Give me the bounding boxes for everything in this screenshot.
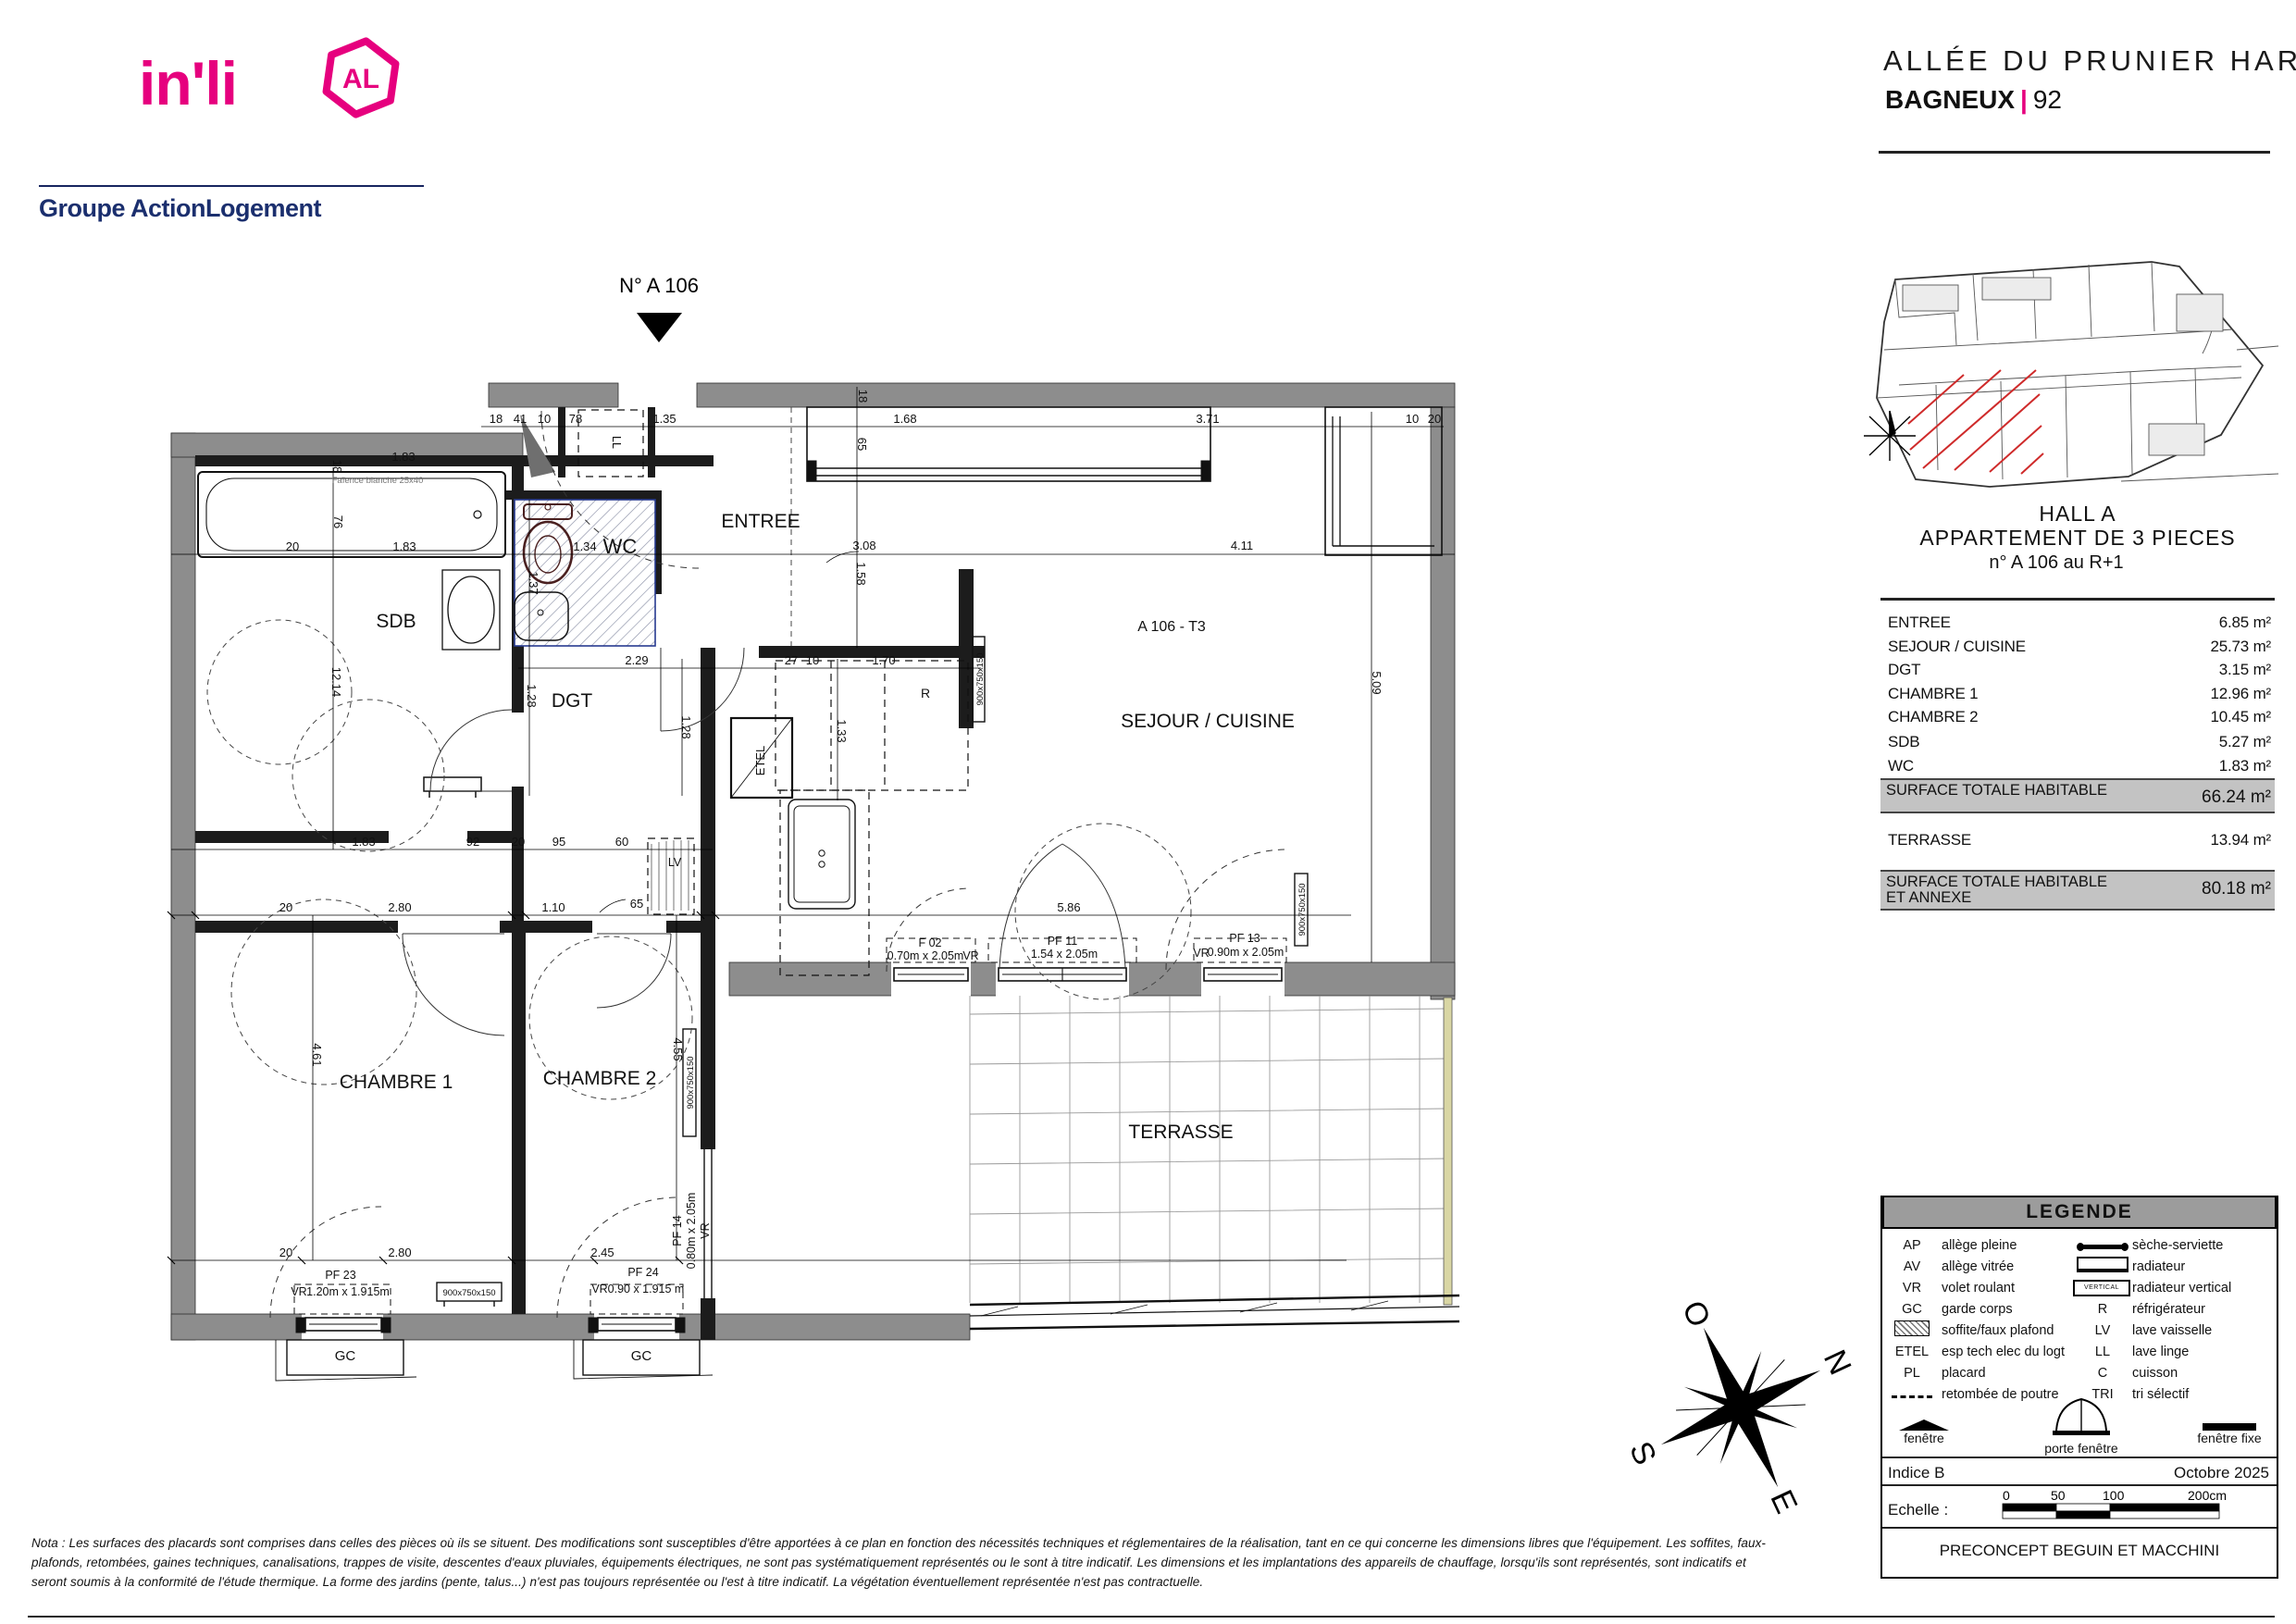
dim-label: 2.29: [625, 653, 648, 667]
room-labels: ENTREE WC SDB DGT A 106 - T3 SEJOUR / CU…: [340, 511, 1295, 1143]
dim-label: 60: [615, 835, 628, 849]
dim-label: 95: [552, 835, 565, 849]
apartment-title: APPARTEMENT DE 3 PIECES: [1880, 526, 2275, 551]
area-value: 5.27 m²: [2219, 733, 2271, 751]
compass-north-label: N: [1817, 1345, 1856, 1380]
dim-label: 1.83: [392, 539, 416, 553]
dim-label: 20: [1428, 412, 1441, 426]
city-name: BAGNEUX: [1885, 85, 2015, 114]
window-id: F 02: [918, 936, 941, 949]
shutter-label: VR: [699, 1222, 712, 1238]
legend-label: radiateur vertical: [2132, 1281, 2231, 1295]
window-id: PF 14: [671, 1215, 684, 1246]
lv-hatch: [652, 840, 689, 911]
room-label-wc: WC: [603, 535, 638, 558]
area-value: 1.83 m²: [2219, 757, 2271, 775]
room-label-dgt: DGT: [552, 690, 593, 712]
dim-label: 65: [855, 438, 869, 451]
thumbnail-compass-icon: [1864, 411, 1916, 461]
radiator-size-label: 900x750x150: [442, 1288, 495, 1298]
dim-label: 5.86: [1057, 900, 1080, 914]
scale-tick: 0: [2003, 1488, 2010, 1503]
unit-marker-label: N° A 106: [619, 274, 699, 297]
dishwasher-label: LV: [668, 856, 682, 869]
scale-label: Echelle :: [1888, 1501, 1948, 1519]
legend-label: garde corps: [1942, 1302, 2013, 1317]
dim-label: 1.10: [541, 900, 565, 914]
dim-label: 1.83: [352, 835, 375, 849]
door-swings: [270, 411, 1286, 1318]
area-label: SDB: [1888, 733, 1919, 751]
area-row: SEJOUR / CUISINE25.73 m²: [1888, 638, 2271, 656]
porte-fenetre-icon: [2053, 1397, 2110, 1436]
towel-radiator: [424, 777, 481, 798]
wall-openings: [302, 961, 1285, 1341]
legend-abbr: PL: [1882, 1366, 1942, 1381]
legend-divider: [1882, 1484, 2277, 1486]
faience-note: Faïence blanche 25x40: [332, 476, 424, 486]
scale-tick: 100: [2103, 1488, 2125, 1503]
area-value: 6.85 m²: [2219, 614, 2271, 632]
area-row: SDB5.27 m²: [1888, 733, 2271, 751]
dim-label: 1.70: [872, 653, 895, 667]
legend-label: réfrigérateur: [2132, 1302, 2205, 1317]
kitchen-sink: [788, 800, 855, 909]
compass-south-label: S: [1625, 1436, 1663, 1470]
legend-label: sèche-serviette: [2132, 1238, 2223, 1253]
dim-label: 1.37: [527, 571, 540, 594]
department-number: 92: [2033, 85, 2062, 114]
area-label: CHAMBRE 2: [1888, 708, 1978, 726]
window-size: 0.90 x 1.915 m: [608, 1283, 685, 1295]
dimension-lines: [168, 387, 1455, 1264]
date-label: Octobre 2025: [2174, 1464, 2269, 1482]
dim-label: 18: [490, 412, 503, 426]
info-divider: [1880, 598, 2275, 601]
compass-west-label: O: [1675, 1295, 1718, 1333]
architect-name: PRECONCEPT BEGUIN ET MACCHINI: [1882, 1542, 2277, 1560]
window-symbol-fenetre-fixe: fenêtre fixe: [2188, 1423, 2271, 1445]
symbol-label: fenêtre fixe: [2188, 1431, 2271, 1445]
dim-label: 10: [538, 412, 551, 426]
legend-label: allège pleine: [1942, 1238, 2017, 1253]
radiator-size-label: 900x750x150: [975, 652, 986, 705]
scale-tick: 50: [2051, 1488, 2066, 1503]
vertical-radiator-icon: VERTICAL: [2073, 1280, 2132, 1296]
symbol-label: fenêtre: [1892, 1431, 1956, 1445]
dim-label: 1.34: [573, 539, 596, 553]
unit-marker-arrow-icon: [637, 313, 682, 342]
guard-rail-label: GC: [631, 1348, 652, 1364]
dimension-labels: 18 41 10 78 1.35 1.68 3.71 10 20 18 65 1…: [279, 390, 1441, 1259]
area-row: CHAMBRE 112.96 m²: [1888, 685, 2271, 703]
window-symbol-fenetre: fenêtre: [1892, 1419, 1956, 1445]
legend-label: tri sélectif: [2132, 1387, 2189, 1402]
legend-box: LEGENDE APallège pleine AVallège vitrée …: [1880, 1196, 2278, 1579]
area-label: SEJOUR / CUISINE: [1888, 638, 2026, 656]
window-size: 0.70m x 2.05m: [887, 949, 964, 962]
dim-label: 10: [806, 653, 819, 667]
area-row: WC1.83 m²: [1888, 757, 2271, 775]
area-label: DGT: [1888, 661, 1920, 679]
page-bottom-rule: [28, 1616, 2275, 1618]
legend-label: esp tech elec du logt: [1942, 1345, 2065, 1359]
logo-divider: [39, 185, 424, 187]
terrasse-label: TERRASSE: [1888, 831, 1971, 849]
window-size: 1.54 x 2.05m: [1031, 948, 1098, 961]
legend-label: radiateur: [2132, 1259, 2185, 1274]
legend-abbr: R: [2073, 1302, 2132, 1317]
legend-abbr: VR: [1882, 1281, 1942, 1295]
legend-title: LEGENDE: [1882, 1196, 2277, 1229]
window-id: PF 23: [325, 1269, 355, 1282]
inli-logo-text: in'li: [139, 49, 237, 118]
dim-label: 12.14: [329, 667, 343, 698]
dim-label: 20: [279, 1246, 292, 1259]
legend-label: allège vitrée: [1942, 1259, 2014, 1274]
dim-label: 18: [856, 390, 870, 403]
dim-label: 1.33: [835, 719, 849, 742]
dim-label: 20: [512, 835, 525, 849]
terrace: [970, 996, 1459, 1329]
radiator-icon: [2073, 1257, 2132, 1276]
dim-label: 1.58: [854, 562, 868, 585]
compass-rose-icon: N S O E: [1625, 1292, 1856, 1523]
fridge-label: R: [921, 686, 930, 700]
shutter-label: VR: [962, 949, 978, 962]
room-label-chambre2: CHAMBRE 2: [543, 1068, 657, 1089]
total-annexe-band: SURFACE TOTALE HABITABLE ET ANNEXE 80.18…: [1880, 870, 2275, 911]
legend-label: placard: [1942, 1366, 1986, 1381]
logo-subtitle: Groupe ActionLogement: [39, 194, 321, 223]
hall-title: HALL A: [1880, 502, 2275, 527]
window-size: 0.80m x 2.05m: [685, 1193, 698, 1270]
area-label: CHAMBRE 1: [1888, 685, 1978, 703]
dim-label: 10: [1406, 412, 1419, 426]
dim-label: 1.83: [391, 450, 415, 464]
soffite-hatch-icon: [1882, 1320, 1942, 1340]
legend-label: lave vaisselle: [2132, 1323, 2212, 1338]
symbol-label: porte fenêtre: [2030, 1441, 2132, 1456]
radiator-size-label: 900x750x150: [1297, 883, 1308, 936]
dim-label: 4.61: [310, 1043, 324, 1066]
dim-label: 41: [514, 412, 527, 426]
dim-label: 3.71: [1196, 412, 1219, 426]
window-size: 0.90m x 2.05m: [1208, 946, 1285, 959]
area-row: CHAMBRE 210.45 m²: [1888, 708, 2271, 726]
unit-tag: A 106 - T3: [1137, 619, 1206, 635]
inli-logo: in'li: [139, 48, 237, 118]
scale-bar: 0 50 100 200cm: [1993, 1488, 2234, 1525]
total-habitable-label: SURFACE TOTALE HABITABLE: [1886, 782, 2107, 800]
window-id: PF 24: [627, 1266, 658, 1279]
dim-label: 20: [286, 539, 299, 553]
dim-label: 18: [330, 460, 344, 473]
legend-abbr: LL: [2073, 1345, 2132, 1359]
area-label: ENTREE: [1888, 614, 1951, 632]
inli-badge-label: AL: [342, 64, 379, 94]
dim-label: 2.80: [388, 900, 411, 914]
legend-abbr: C: [2073, 1366, 2132, 1381]
legend-label: soffite/faux plafond: [1942, 1323, 2054, 1338]
dim-label: 78: [569, 412, 582, 426]
nota-text: Nota : Les surfaces des placards sont co…: [31, 1534, 1771, 1593]
area-value: 25.73 m²: [2211, 638, 2272, 656]
towel-radiator-icon: [2073, 1238, 2132, 1253]
dim-label: 2.80: [388, 1246, 411, 1259]
windows: [296, 968, 1282, 1333]
legend-abbr: ETEL: [1882, 1345, 1942, 1359]
legend-label: cuisson: [2132, 1366, 2178, 1381]
area-row: DGT3.15 m²: [1888, 661, 2271, 679]
guard-rail-label: GC: [335, 1348, 356, 1364]
window-size: 1.20m x 1.915m: [306, 1285, 390, 1298]
radiator-size-label: 900x750x150: [686, 1056, 696, 1109]
dim-label: 5.09: [1370, 671, 1384, 694]
legend-label: volet roulant: [1942, 1281, 2015, 1295]
dim-label: 76: [331, 515, 345, 528]
city-separator: |: [2015, 85, 2033, 114]
legend-divider: [1882, 1527, 2277, 1529]
window-id: PF 13: [1229, 932, 1260, 945]
area-value: 10.45 m²: [2211, 708, 2272, 726]
room-label-sejour: SEJOUR / CUISINE: [1121, 711, 1295, 732]
dim-label: 1.35: [652, 412, 676, 426]
room-label-entree: ENTREE: [721, 511, 800, 532]
window-id: PF 11: [1048, 935, 1077, 948]
inli-logo-badge-icon: AL: [319, 35, 403, 120]
total-annexe-value: 80.18 m²: [2202, 879, 2271, 899]
shutter-label: VR: [591, 1283, 607, 1295]
dim-label: 2.45: [590, 1246, 614, 1259]
etel-label: ETEL: [753, 746, 767, 776]
dim-label: 1.68: [893, 412, 916, 426]
total-habitable-band: SURFACE TOTALE HABITABLE 66.24 m²: [1880, 778, 2275, 813]
dim-label: 20: [279, 900, 292, 914]
legend-abbr: GC: [1882, 1302, 1942, 1317]
dim-label: 27: [785, 653, 798, 667]
indice-label: Indice B: [1888, 1464, 1944, 1482]
legend-abbr: AV: [1882, 1259, 1942, 1274]
room-label-sdb: SDB: [376, 611, 416, 632]
scale-tick: 200cm: [2188, 1488, 2227, 1503]
north-bay-windows: [807, 407, 1442, 555]
room-label-terrasse: TERRASSE: [1128, 1122, 1233, 1143]
project-city-line: BAGNEUX|92: [1885, 85, 2062, 115]
legend-abbr: AP: [1882, 1238, 1942, 1253]
washer-label: LL: [610, 436, 623, 449]
total-habitable-value: 66.24 m²: [2202, 787, 2271, 808]
legend-divider: [1882, 1457, 2277, 1458]
project-title: ALLÉE DU PRUNIER HARDY: [1883, 44, 2296, 78]
window-labels: F 02 0.70m x 2.05m VR PF 11 1.54 x 2.05m…: [291, 436, 1308, 1364]
site-plan-thumbnail: [1843, 155, 2286, 490]
shutter-label: VR: [291, 1285, 306, 1298]
dim-label: 3.08: [852, 539, 875, 552]
area-value: 12.96 m²: [2211, 685, 2272, 703]
room-label-chambre1: CHAMBRE 1: [340, 1072, 453, 1093]
unit-number: n° A 106 au R+1: [1880, 552, 2232, 574]
area-label: WC: [1888, 757, 1914, 775]
dim-label: 1.28: [679, 715, 693, 738]
thumbnail-top-rule: [1879, 151, 2270, 154]
dim-label: 92: [466, 835, 479, 849]
exterior-walls: [171, 383, 1455, 1340]
window-symbol-porte-fenetre: porte fenêtre: [2030, 1397, 2132, 1456]
washbasin: [442, 570, 500, 650]
dim-label: 1.28: [525, 684, 539, 707]
area-value: 3.15 m²: [2219, 661, 2271, 679]
compass-east-label: E: [1763, 1485, 1804, 1519]
legend-abbr: LV: [2073, 1323, 2132, 1338]
dim-label: 65: [630, 897, 643, 911]
terrasse-value: 13.94 m²: [2211, 831, 2272, 849]
area-row: ENTREE6.85 m²: [1888, 614, 2271, 632]
terrasse-row: TERRASSE13.94 m²: [1888, 831, 2271, 849]
beam-dash-icon: [1882, 1387, 1942, 1402]
total-annexe-label-2: ET ANNEXE: [1886, 889, 1971, 907]
legend-label: lave linge: [2132, 1345, 2189, 1359]
dim-label: 4.11: [1231, 539, 1253, 552]
floorplan-page: { "branding": { "logo_text": "in'li", "l…: [0, 0, 2296, 1624]
dim-label: 4.55: [671, 1037, 685, 1060]
floor-plan: N° A 106: [167, 250, 1508, 1407]
